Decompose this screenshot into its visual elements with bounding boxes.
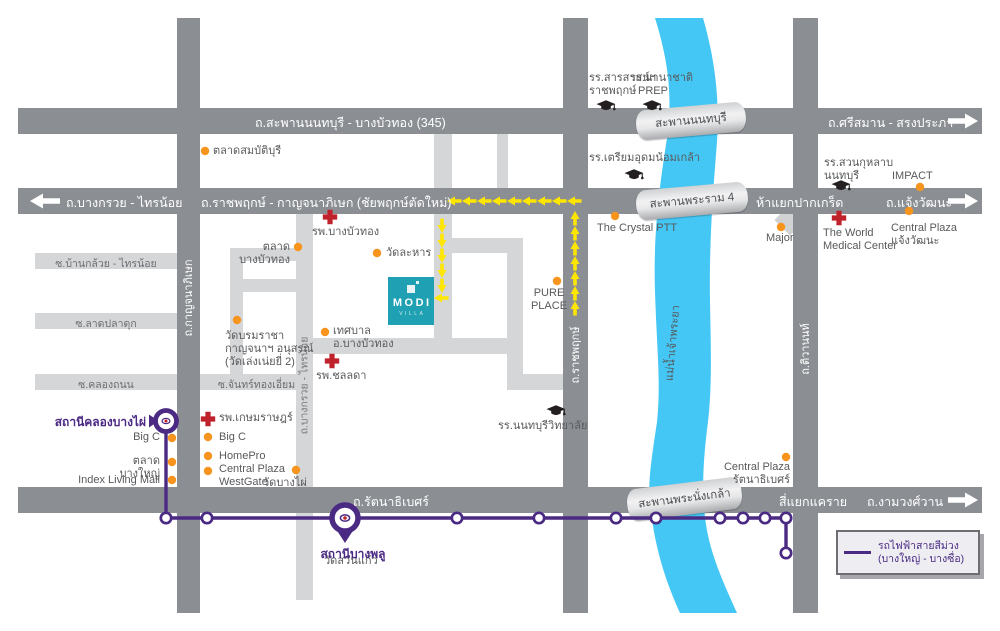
road-label-soi-khlongthanon: ซ.คลองถนน bbox=[35, 376, 177, 393]
poi-wat-lahan: วัดละหาร bbox=[386, 247, 431, 260]
station-label-khlong-bang-phai: สถานีคลองบางไผ่ bbox=[28, 413, 146, 432]
station-circle bbox=[781, 548, 791, 558]
poi-homepro: HomePro bbox=[219, 450, 265, 463]
mrt-logo-icon bbox=[162, 418, 170, 423]
poi-talat-sombatburi: ตลาดสมบัติบุรี bbox=[213, 145, 281, 158]
modi-logo-mark-icon bbox=[407, 285, 415, 293]
modi-name: MODI bbox=[393, 297, 432, 309]
poi-hosp-bangbuathong: รพ.บางบัวทอง bbox=[312, 226, 379, 239]
poi-dot bbox=[782, 453, 790, 461]
road-label-kanchanaphisek: ถ.กาญจนาภิเษก bbox=[179, 251, 197, 345]
poi-world-medical: The World Medical Center bbox=[823, 227, 897, 253]
modi-villa-logo: MODI VILLA bbox=[388, 277, 434, 325]
station-circle bbox=[161, 513, 171, 523]
station-khlong-bang-phai-icon bbox=[156, 411, 177, 432]
station-circles bbox=[161, 513, 791, 558]
school-cap-icon bbox=[625, 169, 644, 179]
bridge-phranangklao-label: สะพานพระนั่งเกล้า bbox=[637, 484, 731, 513]
purple-line-swatch-icon bbox=[844, 551, 871, 555]
station-circle bbox=[202, 513, 212, 523]
poi-talat-bangbuathong: ตลาดบางบัวทอง bbox=[215, 241, 290, 267]
poi-school-suankularb: รร.สวนกุหลาบ นนทบุรี bbox=[824, 157, 893, 183]
poi-dot bbox=[201, 147, 209, 155]
modi-sub: VILLA bbox=[399, 311, 425, 317]
poi-central-rattanathibet: Central Plaza รัตนาธิเบศร์ bbox=[722, 461, 790, 487]
poi-dot bbox=[204, 467, 212, 475]
legend-text: รถไฟฟ้าสายสีม่วง (บางใหญ่ - บางซื่อ) bbox=[878, 540, 964, 566]
legend-box: รถไฟฟ้าสายสีม่วง (บางใหญ่ - บางซื่อ) bbox=[836, 530, 980, 575]
poi-central-chaengwattana: Central Plaza แจ้งวัฒนะ bbox=[891, 222, 957, 248]
poi-dot bbox=[204, 452, 212, 460]
poi-wat-bangphai: วัดบางไผ่ bbox=[263, 477, 307, 490]
road-label-soi-bankluai: ซ.บ้านกล้วย - ไทรน้อย bbox=[35, 255, 177, 272]
poi-school-triamudom: รร.เตรียมอุดมน้อมเกล้า bbox=[589, 152, 700, 165]
poi-hosp-kasemrad: รพ.เกษมราษฎร์ bbox=[219, 412, 293, 425]
road-label-rattanathibet: ถ.รัตนาธิเบศร์ bbox=[353, 492, 429, 512]
poi-crystal-ptt: The Crystal PTT bbox=[597, 222, 677, 235]
poi-impact: IMPACT bbox=[892, 170, 933, 183]
poi-major: Major bbox=[766, 232, 794, 245]
poi-big-c: Big C bbox=[219, 431, 246, 444]
poi-index-living-mall: Index Living Mall bbox=[72, 474, 160, 487]
poi-dot bbox=[553, 277, 561, 285]
road-label-si-yaek-khaerai: สี่แยกแคราย bbox=[779, 492, 847, 512]
bridge-nonthaburi-label: สะพานนนทบุรี bbox=[654, 109, 727, 133]
map-canvas: สะพานนนทบุรี สะพานพระราม 4 สะพานพระนั่งเ… bbox=[0, 0, 1000, 631]
poi-big-c-bangyai: Big C bbox=[112, 431, 160, 444]
poi-school-nonthaburi: รร.นนทบุรีวิทยาลัย bbox=[498, 420, 587, 433]
poi-dot bbox=[168, 458, 176, 466]
station-circle bbox=[611, 513, 621, 523]
road-label-ratchaphruek: ถ.ราชพฤกษ์ bbox=[566, 315, 584, 395]
road-label-ratchaphruek-kanchana: ถ.ราชพฤกษ์ - กาญจนาภิเษก (ชัยพฤกษ์ตัดใหม… bbox=[201, 193, 451, 213]
bridge-rama4-label: สะพานพระราม 4 bbox=[649, 188, 735, 213]
poi-school-prep: รร.นานาชาติ PREP bbox=[630, 72, 676, 98]
poi-hosp-chonlada: รพ.ชลลดา bbox=[316, 370, 366, 383]
station-circle bbox=[452, 513, 462, 523]
poi-dot bbox=[168, 434, 176, 442]
road-label-tiwanon: ถ.ติวานนท์ bbox=[796, 315, 814, 383]
hospital-cross-icon bbox=[325, 354, 339, 368]
road-label-soi-chanthong: ซ.จันทร์ทองเอี่ยม bbox=[200, 376, 313, 393]
road-pureplace-bottom bbox=[507, 374, 570, 390]
station-pin-icon bbox=[336, 529, 354, 543]
road-stub-vertical bbox=[497, 134, 508, 190]
station-circle bbox=[760, 513, 770, 523]
road-label-345: ถ.สะพานนนทบุรี - บางบัวทอง (345) bbox=[255, 113, 446, 133]
road-pureplace-vertical bbox=[507, 238, 523, 390]
poi-dot bbox=[373, 249, 381, 257]
road-label-bangkruai-west: ถ.บางกรวย - ไทรน้อย bbox=[66, 193, 182, 213]
poi-pure-place: PURE PLACE bbox=[530, 287, 568, 313]
poi-wat-borommaracha: วัดบรมราชา กาญจนาฯ อนุสรณ์ (วัดเล่งเน่ยย… bbox=[225, 330, 314, 370]
poi-dot bbox=[321, 328, 329, 336]
road-label-srisaman: ถ.ศรีสมาน - สรงประภา bbox=[828, 113, 953, 133]
road-label-soi-latpladuk: ซ.ลาดปลาดุก bbox=[35, 315, 177, 332]
mrt-logo-icon bbox=[340, 515, 349, 521]
station-circle bbox=[738, 513, 748, 523]
station-circle bbox=[534, 513, 544, 523]
station-label-bang-phlu: สถานีบางพลู bbox=[313, 545, 393, 564]
road-label-chaengwattana: ถ.แจ้งวัฒนะ bbox=[886, 193, 952, 213]
station-circle bbox=[715, 513, 725, 523]
poi-dot bbox=[168, 476, 176, 484]
station-pointer-icon bbox=[149, 415, 159, 428]
station-circle bbox=[781, 513, 791, 523]
river-label: แม่น้ำเจ้าพระยา bbox=[659, 292, 686, 393]
road-label-ngamwongwan: ถ.งามวงศ์วาน bbox=[867, 492, 943, 512]
poi-tessaban-bangbuathong: เทศบาล อ.บางบัวทอง bbox=[333, 325, 394, 351]
hospital-cross-icon bbox=[201, 412, 215, 426]
road-label-ha-yaek-pakkret: ห้าแยกปากเกร็ด bbox=[756, 193, 843, 213]
poi-dot bbox=[204, 433, 212, 441]
